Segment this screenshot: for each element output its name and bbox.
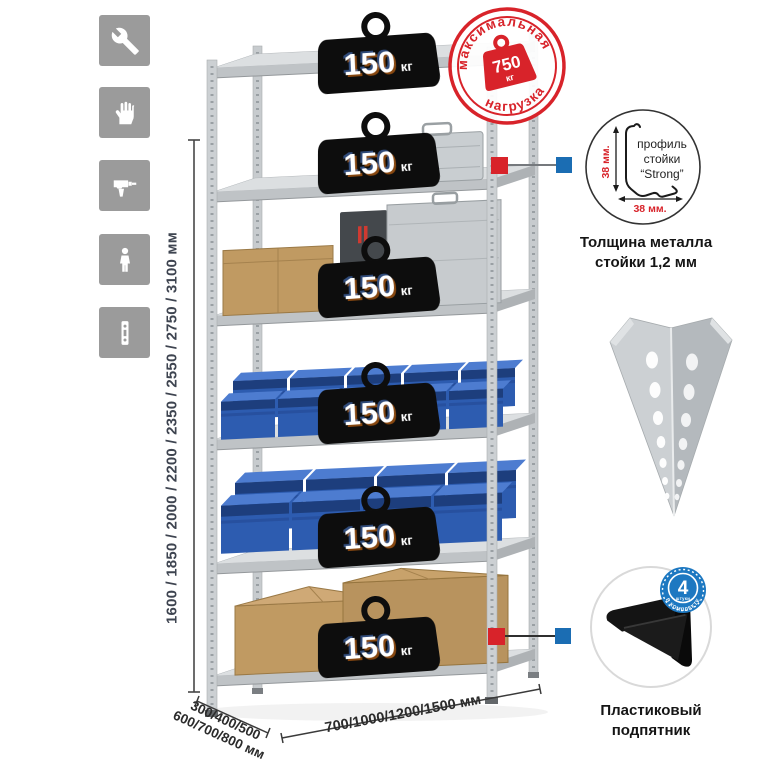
- shelf-load-value: 150: [343, 44, 397, 83]
- profile-label-1: профиль: [637, 137, 687, 151]
- drill-icon: [99, 160, 150, 211]
- profile-label-2: стойки: [644, 152, 681, 166]
- profile-detail-circle: 38 мм. 38 мм. профиль стойки “Strong”: [582, 106, 704, 228]
- wrench-icon: [99, 15, 150, 66]
- connector-red-square-bottom: [488, 628, 505, 645]
- shelf-load-unit: кг: [400, 643, 414, 659]
- weight-badge-4: 150кг: [314, 358, 439, 444]
- shelf-load-unit: кг: [400, 159, 414, 175]
- connector-line-bottom: [503, 635, 557, 637]
- connector-blue-square-bottom: [555, 628, 571, 644]
- person-icon: [99, 234, 150, 285]
- profile-label-3: “Strong”: [640, 167, 683, 181]
- profile-dim-horizontal: 38 мм.: [633, 203, 666, 215]
- connector-blue-square-top: [556, 157, 572, 173]
- shelf-load-unit: кг: [400, 409, 414, 425]
- profile-caption-line2: стойки 1,2 мм: [575, 253, 717, 273]
- shelf-load-unit: кг: [400, 533, 414, 549]
- foot-caption-line2: подпятник: [584, 721, 718, 741]
- weight-badge-6: 150кг: [314, 592, 439, 678]
- shelf-load-value: 150: [343, 268, 397, 307]
- kit-badge: 4 штуки в комплекте: [659, 566, 707, 614]
- profile-dim-vertical: 38 мм.: [600, 145, 612, 178]
- weight-badge-5: 150кг: [314, 482, 439, 568]
- rack-post-icon: [99, 307, 150, 358]
- connector-red-square-top: [491, 157, 508, 174]
- profile-caption-line1: Толщина металла: [575, 233, 717, 253]
- connector-line-top: [506, 164, 558, 166]
- max-load-stamp: максимальная нагрузка 750 кг: [441, 2, 573, 130]
- weight-badge-1: 150кг: [314, 8, 439, 94]
- shelf-load-value: 150: [343, 628, 397, 667]
- foot-caption: Пластиковый подпятник: [584, 701, 718, 740]
- height-dimension-label: 1600 / 1850 / 2000 / 2200 / 2350 / 2550 …: [164, 232, 181, 624]
- product-infographic: 1600 / 1850 / 2000 / 2200 / 2350 / 2550 …: [0, 0, 765, 765]
- weight-badge-2: 150кг: [314, 108, 439, 194]
- shelf-load-unit: кг: [400, 283, 414, 299]
- gloves-icon: [99, 87, 150, 138]
- shelf-load-value: 150: [343, 518, 397, 557]
- profile-caption: Толщина металла стойки 1,2 мм: [575, 233, 717, 272]
- shelf-load-value: 150: [343, 144, 397, 183]
- weight-badge-3: 150кг: [314, 232, 439, 318]
- foot-caption-line1: Пластиковый: [584, 701, 718, 721]
- kit-badge-sub: штуки: [676, 596, 690, 601]
- shelf-load-value: 150: [343, 394, 397, 433]
- corner-post-illustration: [600, 300, 740, 525]
- shelf-load-unit: кг: [400, 59, 414, 75]
